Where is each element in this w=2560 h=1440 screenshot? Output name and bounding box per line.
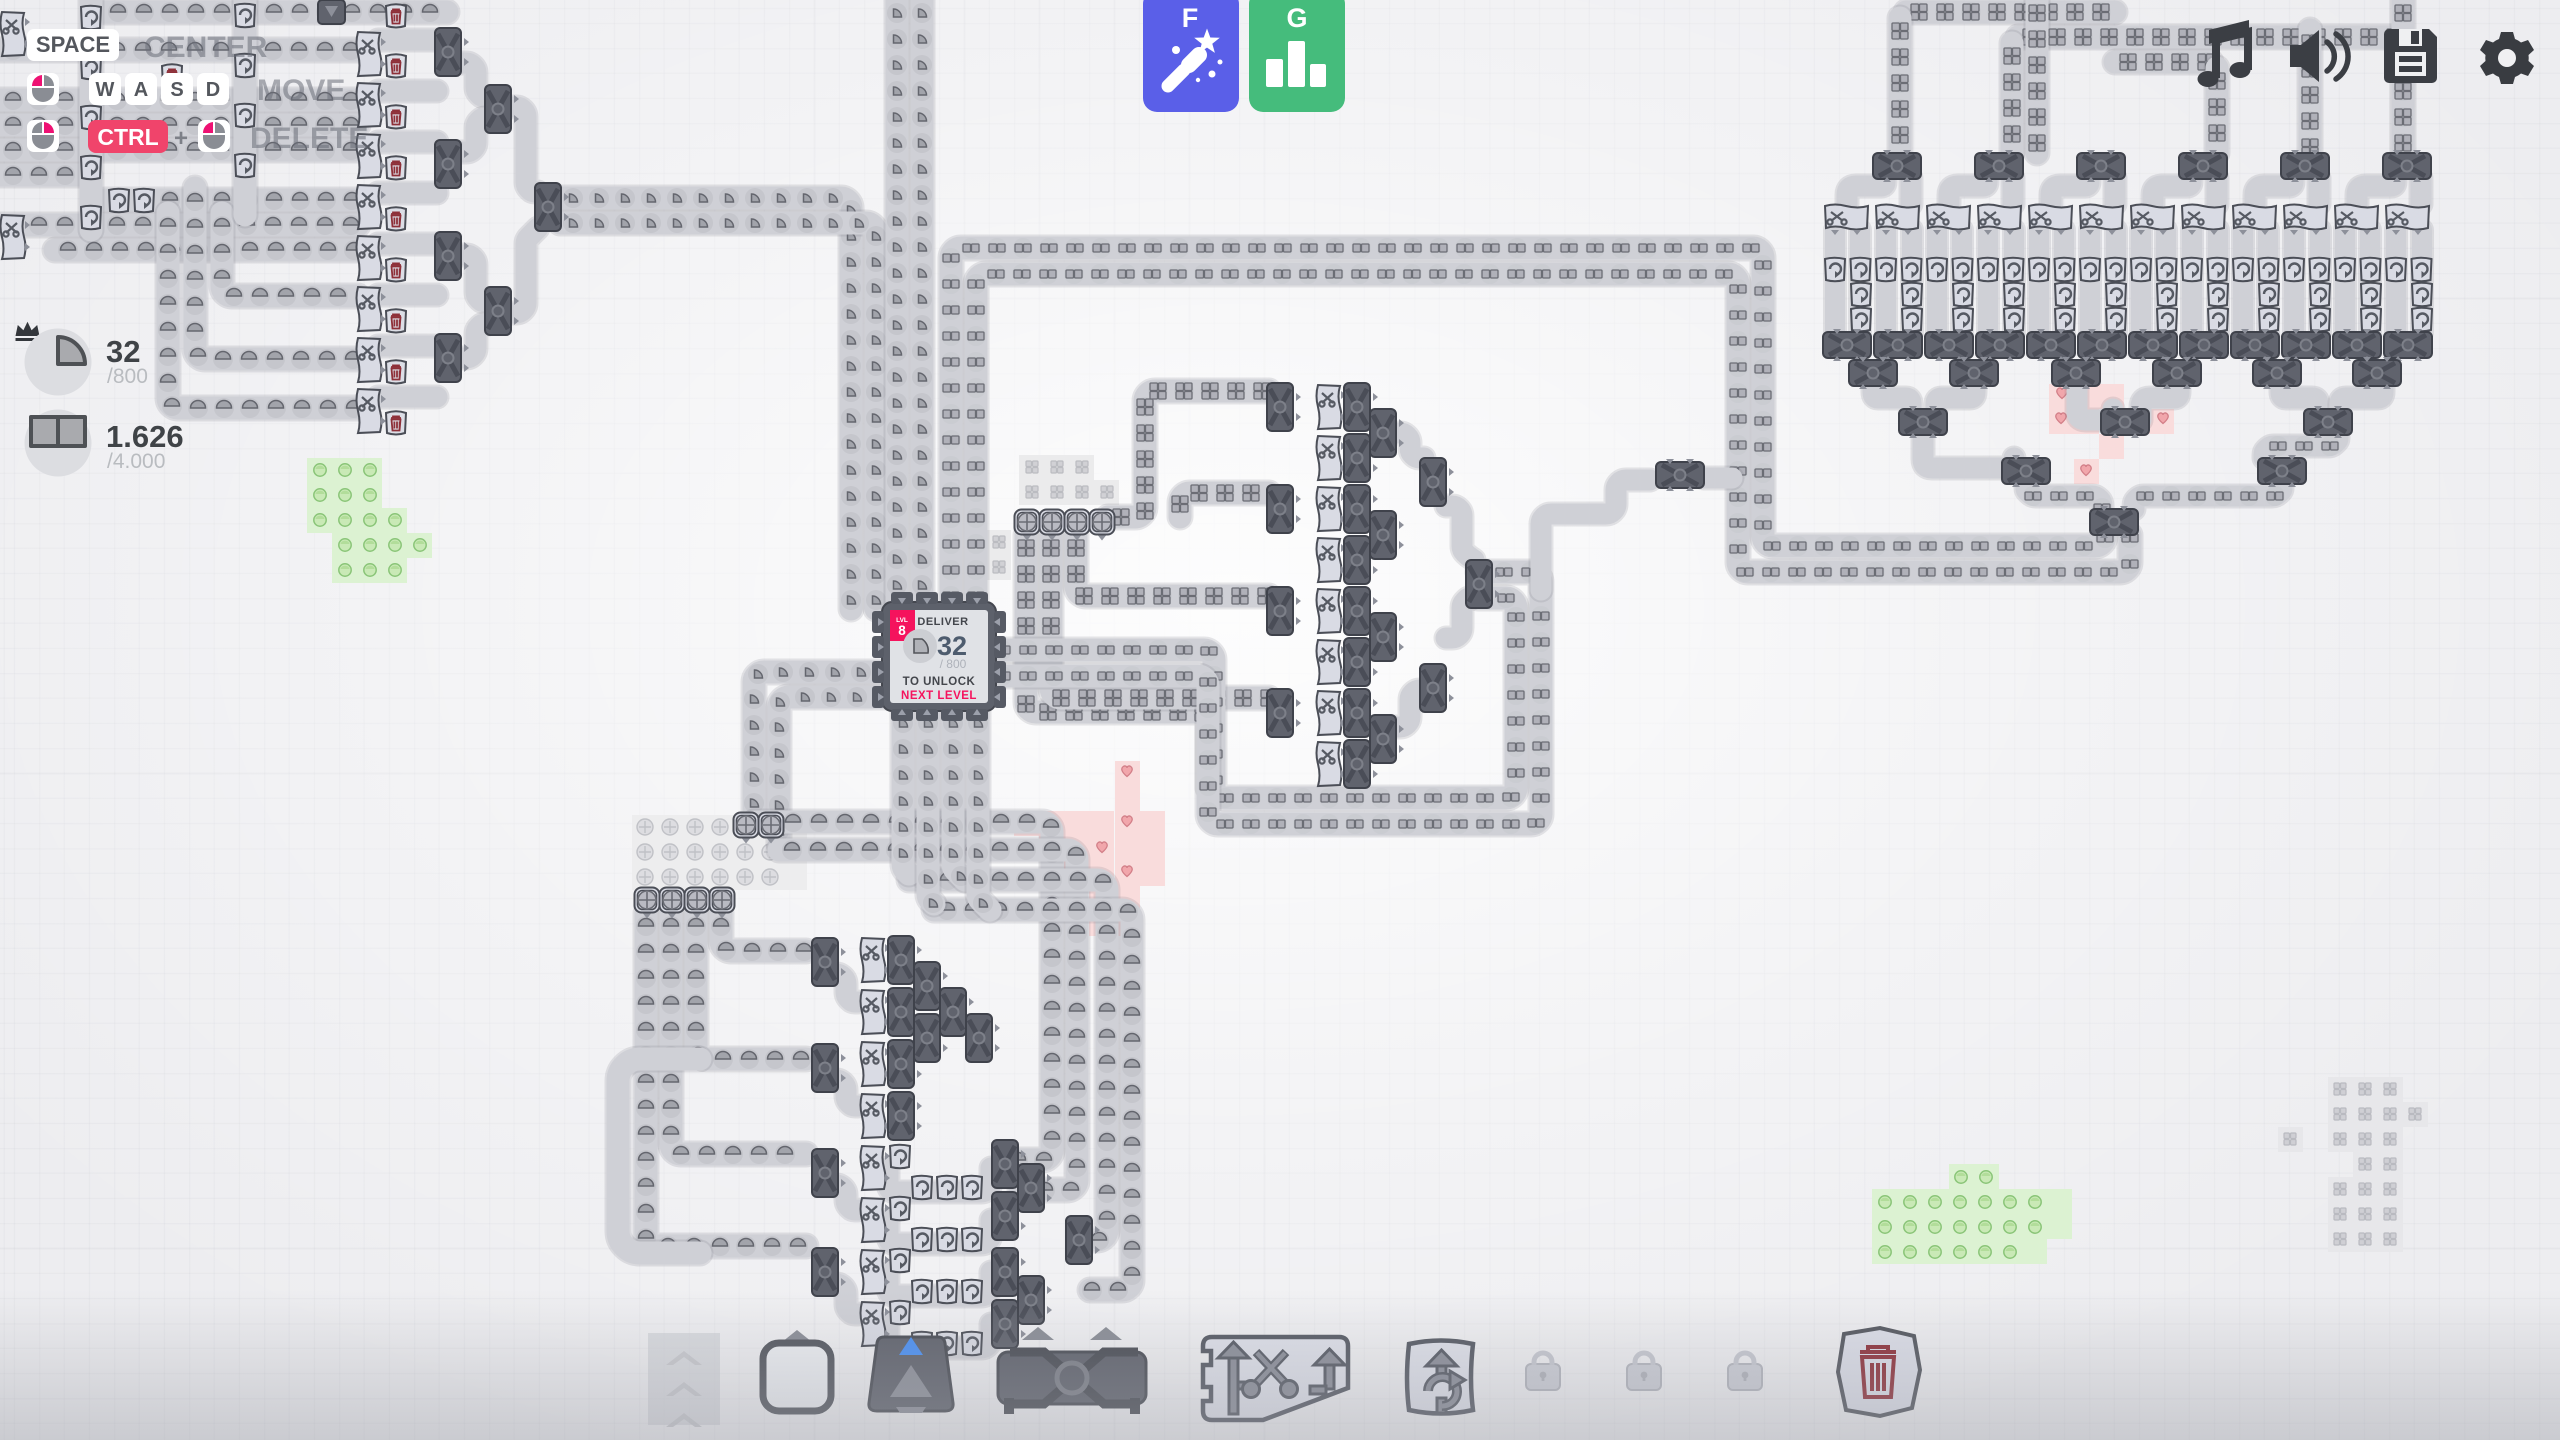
svg-text:A: A <box>134 79 148 101</box>
svg-text:S: S <box>170 79 183 101</box>
svg-text:D: D <box>206 79 220 101</box>
svg-text:8: 8 <box>898 623 906 638</box>
svg-text:32: 32 <box>106 334 140 369</box>
svg-text:1.626: 1.626 <box>106 419 184 454</box>
svg-text:MOVE: MOVE <box>257 74 345 107</box>
svg-text:/ 800: / 800 <box>940 657 967 671</box>
svg-text:DELETE: DELETE <box>250 122 368 155</box>
svg-text:DELIVER: DELIVER <box>917 616 968 628</box>
svg-text:/800: /800 <box>107 365 148 388</box>
svg-text:W: W <box>96 79 115 101</box>
svg-text:NEXT LEVEL: NEXT LEVEL <box>901 690 977 702</box>
svg-text:+: + <box>174 125 188 152</box>
svg-text:TO UNLOCK: TO UNLOCK <box>903 676 976 688</box>
svg-text:SPACE: SPACE <box>36 32 110 57</box>
svg-text:F: F <box>1182 3 1199 33</box>
svg-text:CTRL: CTRL <box>97 124 158 150</box>
svg-text:/4.000: /4.000 <box>107 450 165 473</box>
svg-text:CENTER: CENTER <box>144 31 268 64</box>
svg-text:G: G <box>1286 3 1307 33</box>
